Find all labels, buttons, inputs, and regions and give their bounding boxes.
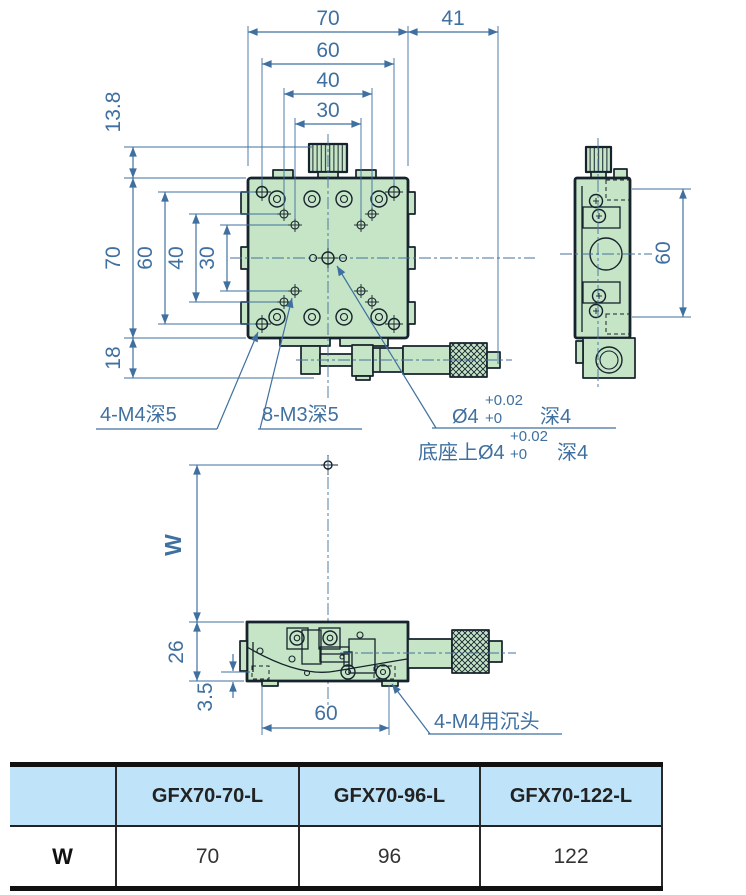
dim-top-41: 41 bbox=[408, 7, 498, 364]
dim-label-side-60: 60 bbox=[652, 241, 675, 264]
dim-label-13-8: 13.8 bbox=[102, 92, 125, 133]
dim-label-left-30: 30 bbox=[196, 246, 219, 269]
foot bbox=[262, 681, 278, 686]
spec-table-corner-cell bbox=[10, 767, 115, 827]
note-dia4-tol-upper: +0.02 bbox=[485, 392, 523, 409]
dim-label-70: 70 bbox=[316, 7, 339, 30]
dim-label-30: 30 bbox=[316, 99, 339, 122]
dim-label-left-60: 60 bbox=[134, 246, 157, 269]
side-adjust-knob bbox=[586, 147, 627, 179]
foot bbox=[382, 681, 398, 686]
dim-label-left-70: 70 bbox=[102, 246, 125, 269]
dim-label-60: 60 bbox=[316, 39, 339, 62]
spec-table-value: 70 bbox=[115, 827, 298, 886]
spec-table-col-header: GFX70-70-L bbox=[115, 767, 298, 827]
dim-label-18: 18 bbox=[102, 346, 125, 369]
note-base-tol-upper: +0.02 bbox=[510, 428, 548, 445]
note-label-8-m3: 8-M3深5 bbox=[262, 403, 339, 426]
note-base-depth: 深4 bbox=[557, 441, 588, 464]
dim-label-3-5: 3.5 bbox=[194, 682, 217, 711]
side-micrometer-end bbox=[576, 338, 635, 378]
dim-w: W bbox=[160, 465, 321, 622]
bottom-view: W 26 3.5 60 4-M4用沉头 bbox=[160, 455, 562, 735]
spec-table-value: 122 bbox=[479, 827, 663, 886]
datasheet-page: 70 41 60 40 30 1 bbox=[0, 0, 746, 895]
note-dia4-symbol: Ø4 bbox=[452, 406, 479, 428]
note-dia4-tol-lower: +0 bbox=[485, 410, 502, 427]
spec-table-col-header: GFX70-96-L bbox=[298, 767, 479, 827]
note-label-4-m4: 4-M4深5 bbox=[100, 403, 177, 426]
spec-table-col-header: GFX70-122-L bbox=[479, 767, 663, 827]
dim-label-bottom-60: 60 bbox=[314, 702, 337, 725]
dim-left-13-8: 13.8 bbox=[102, 92, 312, 178]
spec-table-row-label: W bbox=[10, 827, 115, 886]
left-clamp-tab bbox=[240, 641, 247, 671]
note-4-m4-countersink: 4-M4用沉头 bbox=[392, 684, 562, 734]
dim-label-left-40: 40 bbox=[165, 246, 188, 269]
side-view: 60 bbox=[560, 138, 691, 390]
dim-left-70: 70 bbox=[102, 178, 133, 338]
note-label-4-m4-countersink: 4-M4用沉头 bbox=[434, 710, 540, 733]
note-base-tol-lower: +0 bbox=[510, 446, 527, 463]
dim-label-w: W bbox=[160, 534, 186, 556]
dim-label-26: 26 bbox=[165, 640, 188, 663]
top-view: 70 41 60 40 30 1 bbox=[96, 7, 616, 464]
dim-bottom-60: 60 bbox=[262, 685, 389, 735]
note-base-dia4: 底座上Ø4 bbox=[418, 441, 505, 464]
dim-side-60: 60 bbox=[632, 189, 691, 317]
knurled-grip bbox=[452, 630, 489, 673]
dim-label-40: 40 bbox=[316, 69, 339, 92]
dimension-drawing: 70 41 60 40 30 1 bbox=[0, 0, 746, 758]
note-dia4-depth: 深4 bbox=[540, 405, 571, 428]
spec-table: GFX70-70-L GFX70-96-L GFX70-122-L W 70 9… bbox=[10, 762, 663, 891]
micrometer-head bbox=[280, 338, 512, 380]
dim-label-41: 41 bbox=[441, 7, 464, 30]
spec-table-value: 96 bbox=[298, 827, 479, 886]
